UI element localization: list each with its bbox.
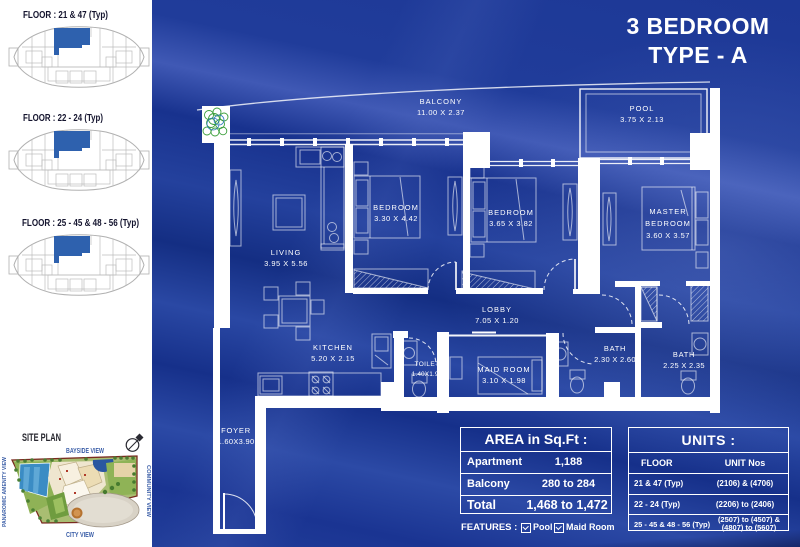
svg-text:3.30 X 4.42: 3.30 X 4.42 (374, 214, 418, 223)
svg-text:3.60 X 3.57: 3.60 X 3.57 (646, 231, 690, 240)
svg-text:FLOOR : 21 & 47 (Typ): FLOOR : 21 & 47 (Typ) (23, 10, 108, 21)
svg-text:TOILET: TOILET (414, 361, 439, 368)
svg-text:LOBBY: LOBBY (482, 305, 512, 314)
svg-text:FLOOR : 25 - 45 & 48 - 56 (Typ: FLOOR : 25 - 45 & 48 - 56 (Typ) (22, 218, 139, 229)
svg-text:PANAROMIC AMENITY VIEW: PANAROMIC AMENITY VIEW (2, 457, 8, 527)
svg-text:3.65 X 3.82: 3.65 X 3.82 (489, 219, 533, 228)
svg-text:MAID ROOM: MAID ROOM (477, 365, 530, 374)
svg-text:BALCONY: BALCONY (420, 97, 463, 106)
svg-text:FLOOR : 22 - 24 (Typ): FLOOR : 22 - 24 (Typ) (23, 113, 103, 124)
svg-text:CITY VIEW: CITY VIEW (66, 532, 94, 539)
svg-text:7.05 X 1.20: 7.05 X 1.20 (475, 316, 519, 325)
svg-text:BEDROOM: BEDROOM (488, 208, 534, 217)
svg-text:BATH: BATH (604, 344, 626, 353)
svg-text:COMMUNITY VIEW: COMMUNITY VIEW (145, 465, 151, 518)
svg-text:2.25 X 2.35: 2.25 X 2.35 (663, 361, 705, 370)
svg-text:LIVING: LIVING (271, 248, 302, 257)
svg-text:3.75 X 2.13: 3.75 X 2.13 (620, 115, 664, 124)
svg-text:BEDROOM: BEDROOM (373, 203, 419, 212)
svg-text:2.30 X 2.60: 2.30 X 2.60 (594, 355, 636, 364)
svg-text:FOYER: FOYER (221, 426, 251, 435)
svg-text:11.00 X 2.37: 11.00 X 2.37 (417, 108, 465, 117)
svg-text:KITCHEN: KITCHEN (313, 343, 353, 352)
svg-text:5.20 X 2.15: 5.20 X 2.15 (311, 354, 355, 363)
svg-text:3.10 X 1.98: 3.10 X 1.98 (482, 376, 526, 385)
svg-text:1.60X3.90: 1.60X3.90 (218, 437, 255, 446)
svg-text:MASTER: MASTER (649, 207, 686, 216)
svg-text:POOL: POOL (630, 104, 655, 113)
svg-text:3.95 X 5.56: 3.95 X 5.56 (264, 259, 308, 268)
svg-text:BEDROOM: BEDROOM (645, 219, 691, 228)
svg-text:BAYSIDE VIEW: BAYSIDE VIEW (66, 448, 104, 455)
svg-text:SITE PLAN: SITE PLAN (22, 432, 61, 444)
